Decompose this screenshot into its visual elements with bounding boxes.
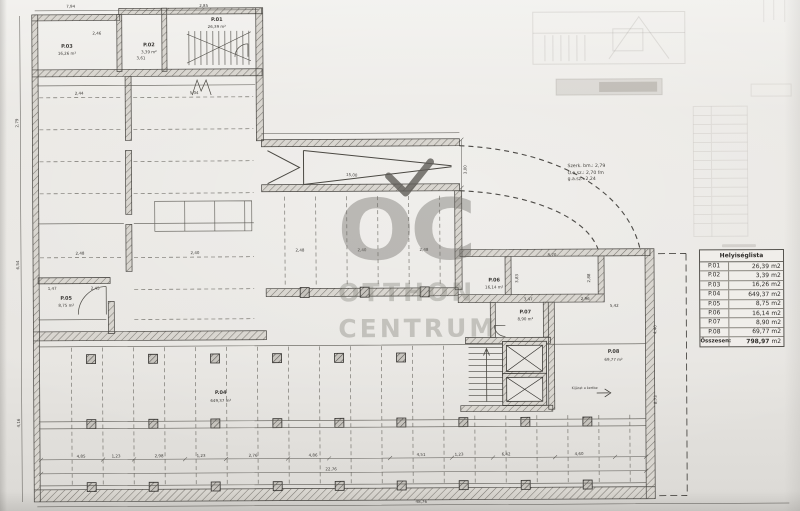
room-area-p02: 3,39 m² (141, 49, 157, 54)
total-area: 798,97 (729, 338, 771, 345)
area-table-title: Helyiséglista (700, 250, 783, 262)
bleed-through-artifacts (533, 0, 792, 237)
dimension-label: 2,40 (191, 250, 200, 255)
dimension-label: 5,42 (610, 303, 619, 308)
area-table-row: P.03 16,26 m2 (700, 281, 783, 291)
room-id: P.01 (700, 262, 729, 271)
dimension-label: 2,45 (91, 286, 100, 291)
dimension-label: 8,70 (548, 252, 557, 257)
room-label-p08: P.08 (608, 349, 620, 355)
staircase-top (187, 31, 251, 65)
area-table-total-row: Összesen: 798,97 m2 (700, 337, 783, 346)
area-unit: m2 (771, 319, 783, 326)
staircase-right (468, 347, 502, 401)
height-notes: Szerk. bm.: 2,79 O.a.sz.: 2,70 fm g.a.sz… (568, 164, 606, 184)
dimension-label: 2,48 (296, 247, 305, 252)
area-table-row: P.02 3,39 m2 (700, 271, 783, 281)
area-table-row: P.06 16,14 m2 (700, 309, 783, 319)
dimension-label: 4,86 (309, 452, 318, 457)
room-area: 649,37 (729, 291, 771, 298)
dimension-label: 3,00 (463, 165, 468, 174)
room-area-p06: 16,14 m² (485, 284, 504, 289)
area-unit: m2 (771, 281, 783, 288)
dimension-label: 2,44 (75, 91, 84, 96)
dimension-label: 3,47 (524, 296, 533, 301)
dimension-label: 5,04 (190, 90, 199, 95)
total-label: Összesen: (700, 337, 729, 346)
dimension-label: 1,23 (112, 453, 121, 458)
room-area: 8,90 (729, 319, 771, 326)
dimension-label: 48,76 (416, 499, 428, 504)
dimension-label: 4,40 (652, 325, 657, 334)
area-table-row: P.01 26,39 m2 (700, 262, 783, 272)
area-unit: m2 (771, 328, 783, 335)
area-unit: m2 (771, 263, 783, 270)
dimension-label: 1,47 (48, 286, 57, 291)
area-unit: m2 (771, 300, 783, 307)
door-arc-p07 (494, 325, 505, 336)
plan-linework (20, 5, 790, 507)
room-id: P.05 (700, 300, 729, 309)
area-table-row: P.08 69,77 m2 (700, 328, 783, 338)
room-id: P.03 (700, 281, 729, 290)
dimension-label: 4,16 (16, 418, 21, 427)
drawing-sheet: 7,94 2,85 2,46 3,61 2,44 5,04 2,48 2,40 … (0, 0, 800, 511)
dimension-label: 3,61 (136, 55, 145, 60)
dimension-label: 2,76 (249, 453, 258, 458)
scanned-floor-plan-photo: 7,94 2,85 2,46 3,61 2,44 5,04 2,48 2,40 … (0, 0, 800, 511)
room-id: P.04 (700, 290, 729, 299)
note-line: Szerk. bm.: 2,79 (568, 164, 606, 171)
door-arc-p05 (78, 287, 106, 315)
area-table-row: P.07 8,90 m2 (700, 318, 783, 328)
area-unit: m2 (771, 291, 783, 298)
boundary-dashed-line (658, 254, 687, 496)
area-unit: m2 (771, 310, 783, 317)
driveway-arcs (459, 145, 640, 250)
exit-note: Kijárat a kertbe (572, 386, 598, 390)
note-line: g.a.sz.: 2,24 (568, 177, 606, 184)
dimension-label: 2,48 (420, 247, 429, 252)
room-label-p04: P.04 (215, 390, 227, 396)
room-area-p07: 8,90 m² (517, 316, 533, 321)
dimension-label: 4,51 (417, 452, 426, 457)
room-label-p05: P.05 (60, 296, 72, 302)
area-unit: m2 (771, 272, 783, 279)
area-table-row: P.04 649,37 m2 (700, 290, 783, 300)
room-area-p08: 69,77 m² (604, 357, 623, 362)
room-area-p03: 16,26 m² (58, 51, 77, 56)
dimension-label: 2,98 (155, 453, 164, 458)
dimension-label: 2,48 (76, 251, 85, 256)
room-area: 8,75 (729, 300, 771, 307)
dimension-label: 2,88 (586, 273, 591, 282)
faint-note-mark (722, 244, 756, 247)
dimension-label: 6,42 (502, 451, 511, 456)
dimension-label: 1,23 (197, 453, 206, 458)
floor-plan-drawing: 7,94 2,85 2,46 3,61 2,44 5,04 2,48 2,40 … (0, 0, 800, 511)
room-area: 16,26 (729, 282, 771, 289)
room-area: 16,14 (729, 310, 771, 317)
room-area: 69,77 (729, 328, 771, 335)
elevator-shafts (502, 341, 546, 405)
room-id: P.08 (700, 328, 729, 337)
dimension-label: 2,40 (358, 247, 367, 252)
room-area-p05: 8,75 m² (58, 303, 74, 308)
exit-arrow (597, 389, 611, 397)
room-area-p04: 649,37 m² (210, 398, 231, 403)
ramp-length-label: 15,00 (346, 172, 358, 178)
area-unit: m2 (771, 338, 783, 345)
dimension-lines (20, 7, 790, 507)
dimension-label: 8,73 (653, 395, 658, 404)
room-label-p06: P.06 (488, 277, 500, 283)
room-label-p07: P.07 (519, 309, 531, 315)
dimension-label: 2,46 (92, 31, 101, 36)
dimension-label: 4,85 (77, 454, 86, 459)
room-label-p02: P.02 (143, 42, 155, 48)
area-table-row: P.05 8,75 m2 (700, 300, 783, 310)
room-label-p03: P.03 (61, 44, 73, 50)
dimension-label: 2,96 (581, 296, 590, 301)
room-id: P.07 (700, 319, 729, 328)
dimension-label: 22,76 (325, 466, 337, 471)
dimension-label: 4,60 (575, 451, 584, 456)
dimension-label: 1,23 (455, 452, 464, 457)
room-area-p01: 26,39 m² (208, 24, 227, 29)
dimension-label: 7,94 (66, 4, 75, 9)
room-area: 3,39 (729, 272, 771, 279)
room-area: 26,39 (729, 263, 771, 270)
dimension-label: 6,54 (15, 260, 20, 269)
dimension-label: 2,85 (199, 3, 208, 8)
dimension-label: 3,83 (514, 273, 519, 282)
dimension-label: 2,79 (14, 118, 19, 127)
room-label-p01: P.01 (211, 17, 223, 23)
room-id: P.02 (700, 272, 729, 281)
room-id: P.06 (700, 309, 729, 318)
room-area-table: Helyiséglista P.01 26,39 m2 P.02 3,39 m2… (699, 249, 785, 347)
